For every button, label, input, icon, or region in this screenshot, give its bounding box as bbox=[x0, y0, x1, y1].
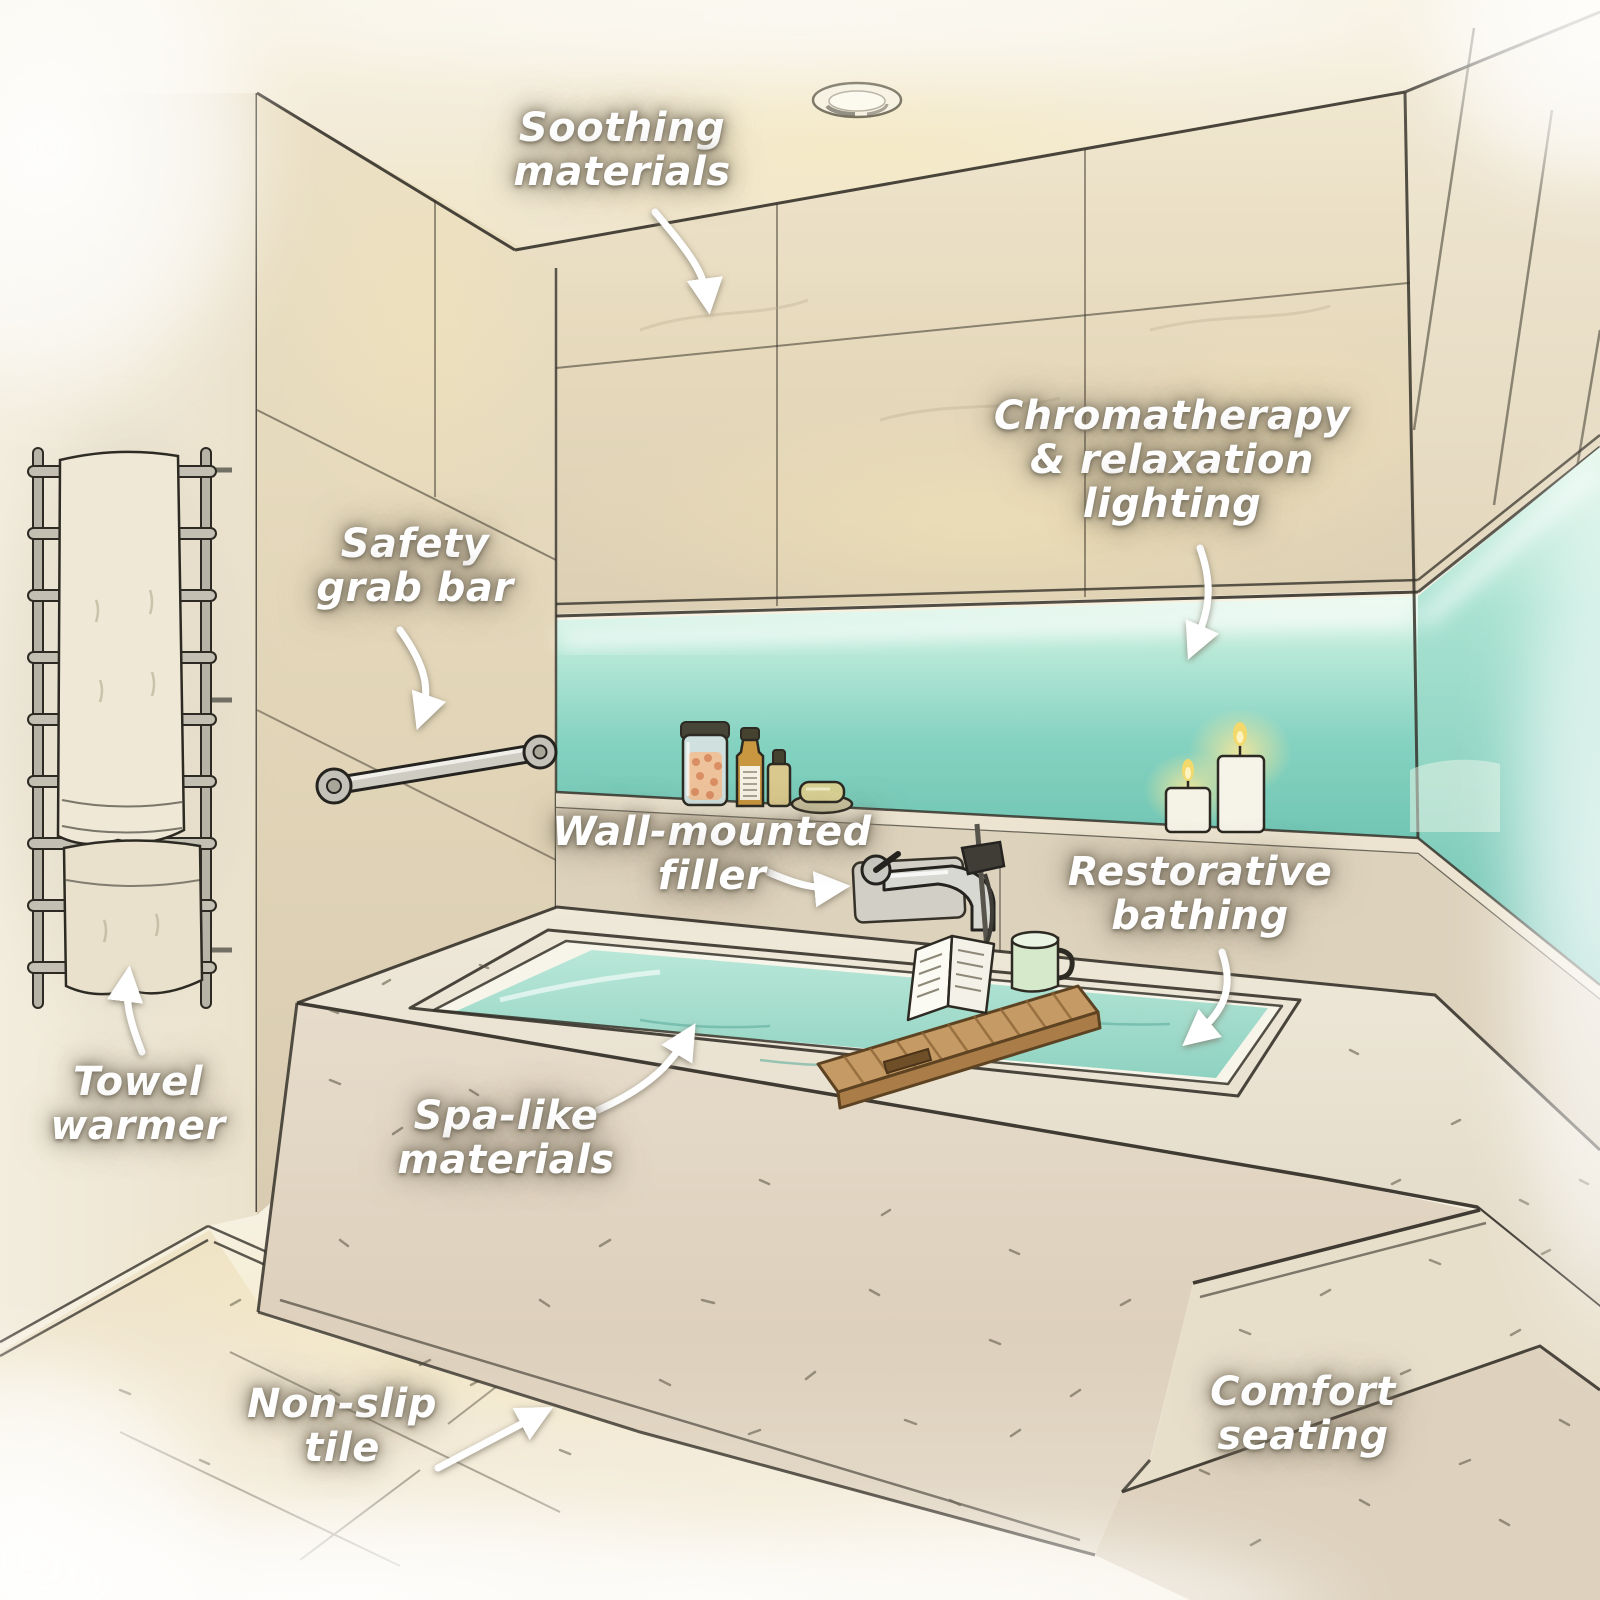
illustration-canvas: Soothing materials Chromatherapy & relax… bbox=[0, 0, 1600, 1600]
bath-salts-jar-icon bbox=[681, 722, 729, 805]
towel-warmer bbox=[0, 420, 240, 1020]
soap-bar-icon bbox=[792, 782, 852, 813]
bathroom-scene bbox=[0, 0, 1600, 1600]
hanging-towel-bottom bbox=[64, 840, 202, 994]
hanging-towel-top bbox=[58, 452, 184, 844]
lotion-bottle-icon bbox=[737, 728, 763, 806]
recessed-light-icon bbox=[813, 83, 901, 117]
open-book-icon bbox=[908, 936, 994, 1020]
